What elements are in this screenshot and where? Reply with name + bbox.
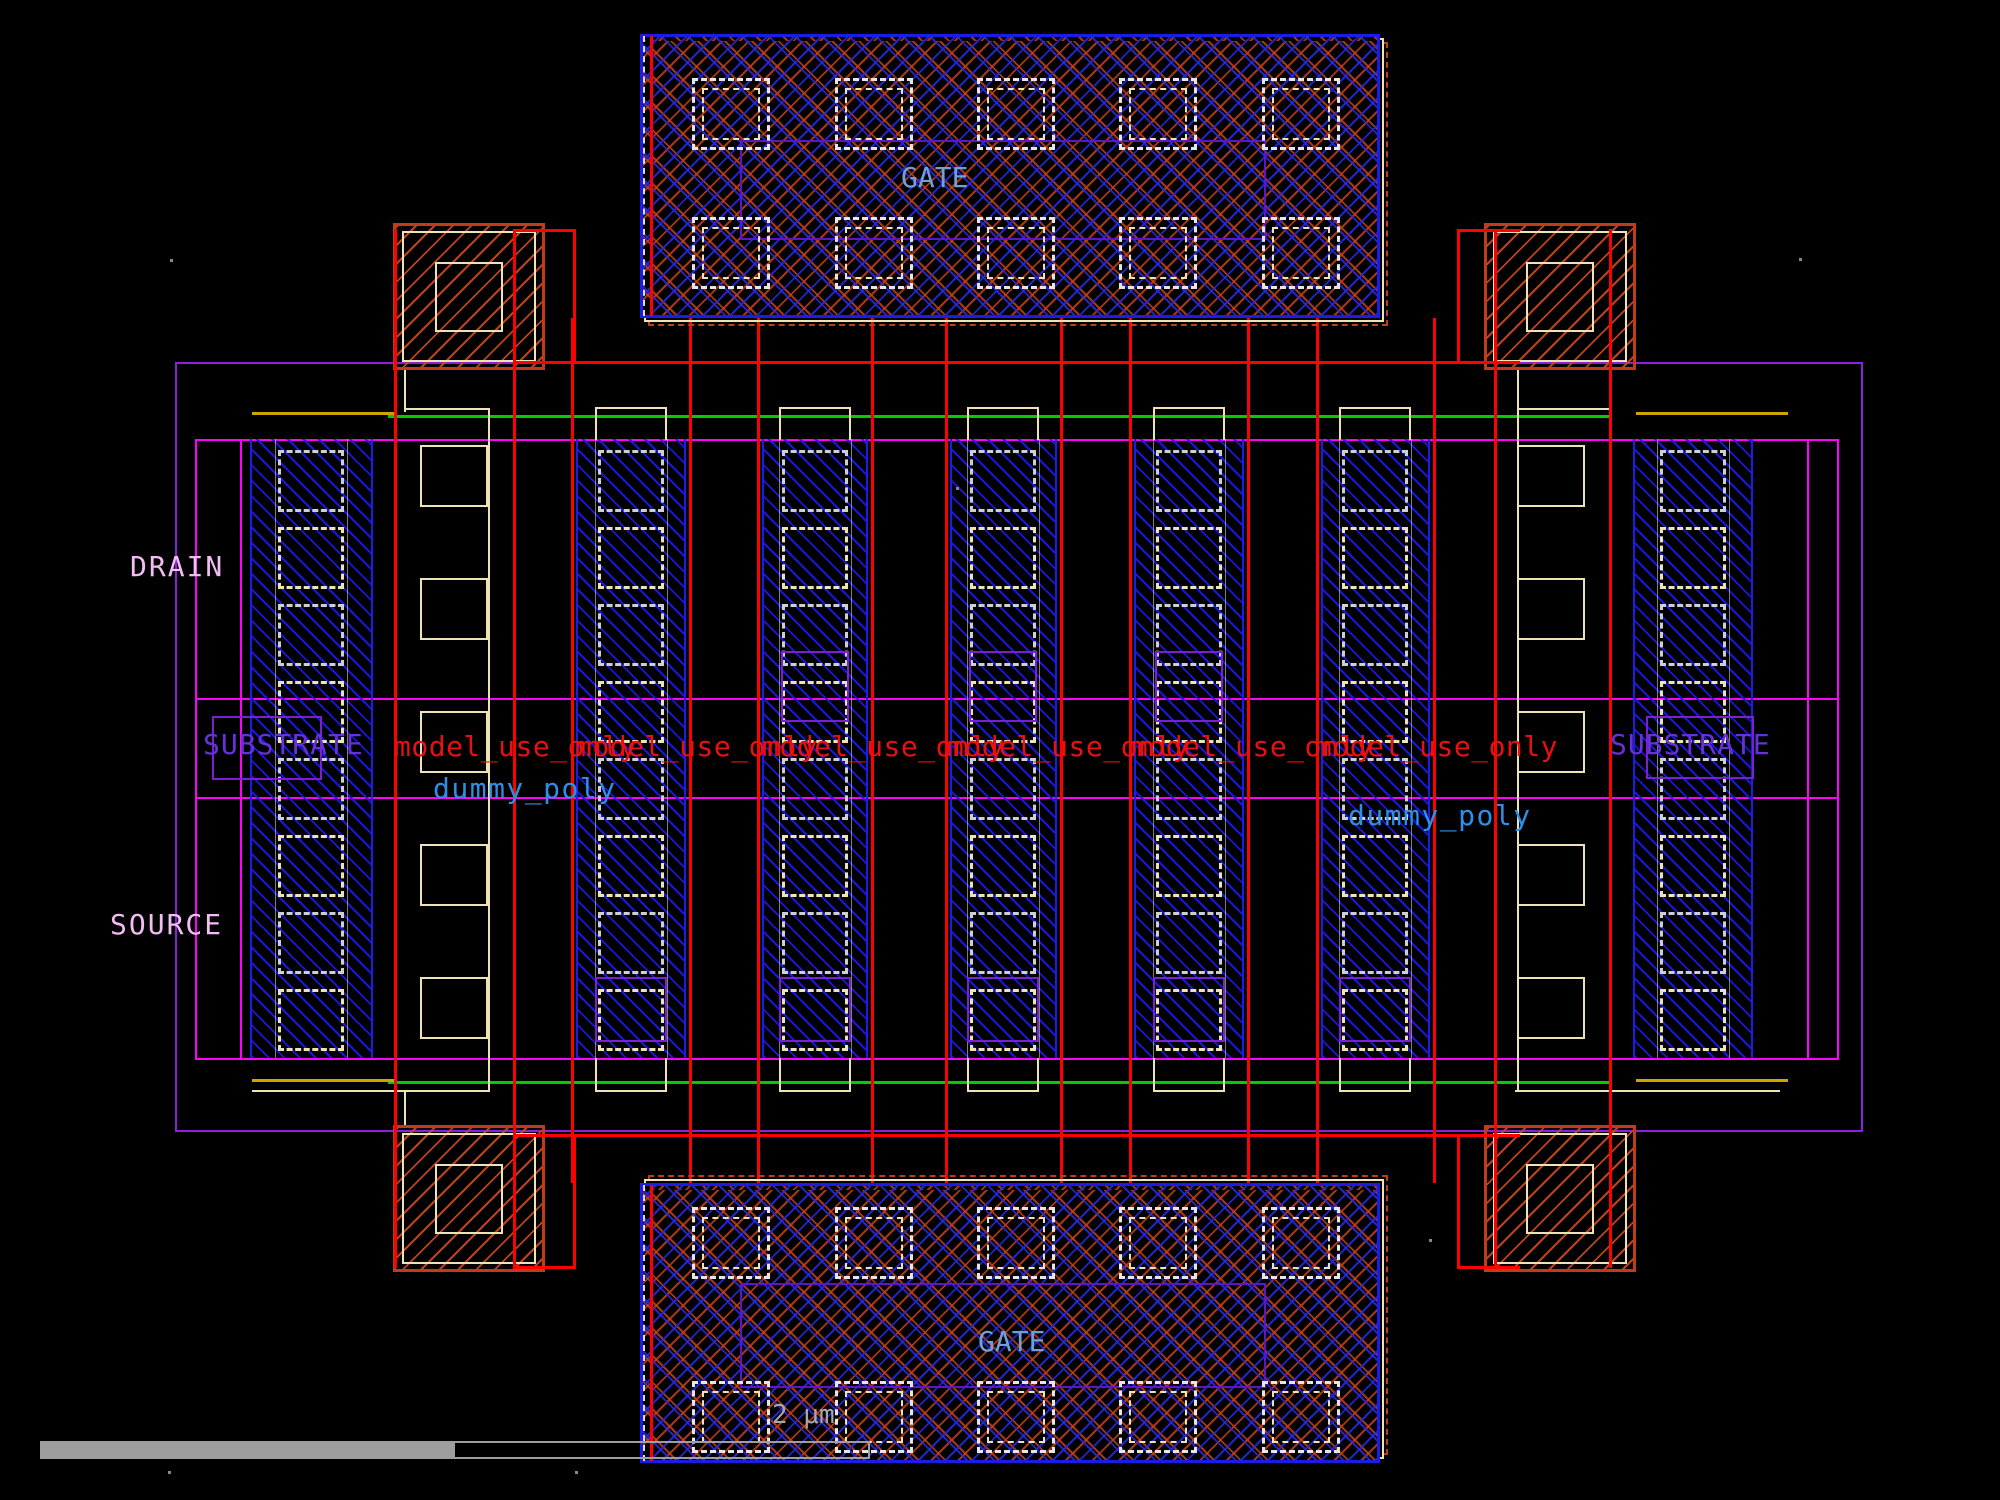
ladder-hook xyxy=(967,407,1039,440)
poly-frame xyxy=(1457,1266,1520,1269)
ladder-square xyxy=(420,445,488,507)
gate-contact-inner xyxy=(1129,227,1187,279)
gate-top-label: GATE xyxy=(901,164,968,192)
scale-label: 2 μm xyxy=(772,1402,835,1428)
contact-square xyxy=(1342,835,1408,897)
contact-square xyxy=(1342,912,1408,974)
ladder-hook xyxy=(1339,407,1411,440)
substrate-right-label: SUBSTRATE xyxy=(1610,731,1771,759)
contact-square xyxy=(1156,758,1222,820)
layout-canvas[interactable]: DRAIN SOURCE SUBSTRATE SUBSTRATE model_u… xyxy=(0,0,2000,1500)
poly-frame xyxy=(513,229,576,232)
gate-contact-inner xyxy=(845,1391,903,1443)
marker-rect xyxy=(1339,977,1411,1042)
scale-bar xyxy=(40,1441,455,1459)
poly-frame xyxy=(573,229,576,362)
pad-contact xyxy=(1526,1164,1594,1234)
marker-rect xyxy=(781,651,849,722)
contact-square xyxy=(278,604,344,666)
ladder-hook xyxy=(1153,407,1225,440)
gate-contact-inner xyxy=(1129,88,1187,140)
ladder-horiz xyxy=(1515,1090,1780,1092)
gate-contact-inner xyxy=(702,1217,760,1269)
gate-contact-inner xyxy=(1272,1217,1330,1269)
contact-square xyxy=(1156,835,1222,897)
ladder-square xyxy=(420,578,488,640)
contact-square xyxy=(782,912,848,974)
contact-square xyxy=(1660,450,1726,512)
pad-connector xyxy=(404,368,406,412)
gate-contact-inner xyxy=(1272,88,1330,140)
poly-frame xyxy=(573,1135,576,1268)
contact-square xyxy=(278,989,344,1051)
contact-square xyxy=(278,527,344,589)
gate-contact-inner xyxy=(702,1391,760,1443)
grid-dot xyxy=(1799,258,1802,261)
gate-edge-poly xyxy=(650,36,653,316)
ladder-square xyxy=(1517,578,1585,640)
well-line xyxy=(1837,439,1839,1060)
gate-contact-inner xyxy=(1129,1217,1187,1269)
gate-contact-inner xyxy=(1272,227,1330,279)
poly-frame xyxy=(1457,229,1520,232)
contact-square xyxy=(970,912,1036,974)
ladder-square xyxy=(420,977,488,1039)
contact-square xyxy=(1156,450,1222,512)
ladder-hook xyxy=(595,407,667,440)
gate-contact-inner xyxy=(845,1217,903,1269)
contact-square xyxy=(598,604,664,666)
poly-frame xyxy=(1457,1135,1460,1268)
scale-bar-extension xyxy=(455,1441,870,1459)
poly-rail xyxy=(513,361,1520,364)
marker-rect xyxy=(969,651,1037,722)
gate-contact-inner xyxy=(702,227,760,279)
ladder-hook xyxy=(779,1058,851,1092)
substrate-left-label: SUBSTRATE xyxy=(203,731,364,759)
ladder-horiz xyxy=(252,1090,490,1092)
marker-rect xyxy=(967,977,1039,1042)
gate-contact-inner xyxy=(987,227,1045,279)
contact-square xyxy=(970,450,1036,512)
gate-contact-inner xyxy=(1272,1391,1330,1443)
contact-square xyxy=(1660,527,1726,589)
pad-connector xyxy=(1517,368,1519,412)
pad-contact xyxy=(435,1164,503,1234)
grid-dot xyxy=(168,1471,171,1474)
contact-square xyxy=(782,835,848,897)
gate-contact-inner xyxy=(987,88,1045,140)
tie-rail xyxy=(1636,1079,1788,1082)
contact-square xyxy=(782,527,848,589)
ladder-hook xyxy=(595,1058,667,1092)
contact-square xyxy=(970,835,1036,897)
tie-rail xyxy=(1636,412,1788,415)
contact-square xyxy=(1342,527,1408,589)
well-line xyxy=(1807,439,1809,1060)
dummy-poly-left-label: dummy_poly xyxy=(433,775,617,803)
gate-edge-dash xyxy=(643,36,645,316)
gate-contact-inner xyxy=(845,227,903,279)
marker-rect xyxy=(1153,977,1225,1042)
contact-square xyxy=(782,450,848,512)
marker-rect xyxy=(779,977,851,1042)
grid-dot xyxy=(1429,1239,1432,1242)
contact-square xyxy=(598,912,664,974)
dummy-poly-right-label: dummy_poly xyxy=(1348,802,1532,830)
contact-square xyxy=(278,912,344,974)
gate-bottom-label: GATE xyxy=(978,1328,1045,1356)
ladder-hook xyxy=(779,407,851,440)
well-line xyxy=(195,439,197,1060)
contact-square xyxy=(278,835,344,897)
ladder-horiz xyxy=(1517,408,1610,410)
contact-square xyxy=(1156,912,1222,974)
marker-rect xyxy=(595,977,667,1042)
contact-square xyxy=(782,758,848,820)
ladder-square xyxy=(1517,977,1585,1039)
ladder-square xyxy=(1517,445,1585,507)
gate-contact-inner xyxy=(1129,1391,1187,1443)
pad-contact xyxy=(1526,262,1594,332)
ladder-horiz xyxy=(404,408,488,410)
contact-square xyxy=(1660,912,1726,974)
gate-edge-dash xyxy=(643,1185,645,1461)
source-label: SOURCE xyxy=(110,911,223,939)
pad-contact xyxy=(435,262,503,332)
tie-rail xyxy=(252,412,394,415)
tie-rail xyxy=(252,1079,394,1082)
gate-edge-poly xyxy=(650,1185,653,1461)
ladder-hook xyxy=(1339,1058,1411,1092)
ladder-square xyxy=(420,844,488,906)
contact-square xyxy=(598,835,664,897)
grid-dot xyxy=(575,1471,578,1474)
contact-square xyxy=(598,527,664,589)
grid-dot xyxy=(956,487,959,490)
model-use-only-label: model_use_only xyxy=(1315,733,1558,761)
contact-square xyxy=(1342,604,1408,666)
gate-contact-inner xyxy=(987,1217,1045,1269)
drain-label: DRAIN xyxy=(130,553,224,581)
ladder-square xyxy=(1517,844,1585,906)
contact-square xyxy=(970,527,1036,589)
contact-square xyxy=(598,450,664,512)
contact-square xyxy=(970,758,1036,820)
contact-square xyxy=(1342,450,1408,512)
gate-contact-inner xyxy=(987,1391,1045,1443)
poly-rail xyxy=(513,1134,1520,1137)
contact-square xyxy=(1660,604,1726,666)
gate-contact-inner xyxy=(702,88,760,140)
contact-square xyxy=(1660,989,1726,1051)
contact-square xyxy=(1660,835,1726,897)
contact-square xyxy=(1156,527,1222,589)
pad-connector xyxy=(404,1092,406,1128)
poly-frame xyxy=(513,1266,576,1269)
ladder-hook xyxy=(967,1058,1039,1092)
gate-contact-inner xyxy=(845,88,903,140)
grid-dot xyxy=(170,259,173,262)
marker-rect xyxy=(1155,651,1223,722)
contact-square xyxy=(278,450,344,512)
ladder-hook xyxy=(1153,1058,1225,1092)
poly-frame xyxy=(1457,229,1460,362)
